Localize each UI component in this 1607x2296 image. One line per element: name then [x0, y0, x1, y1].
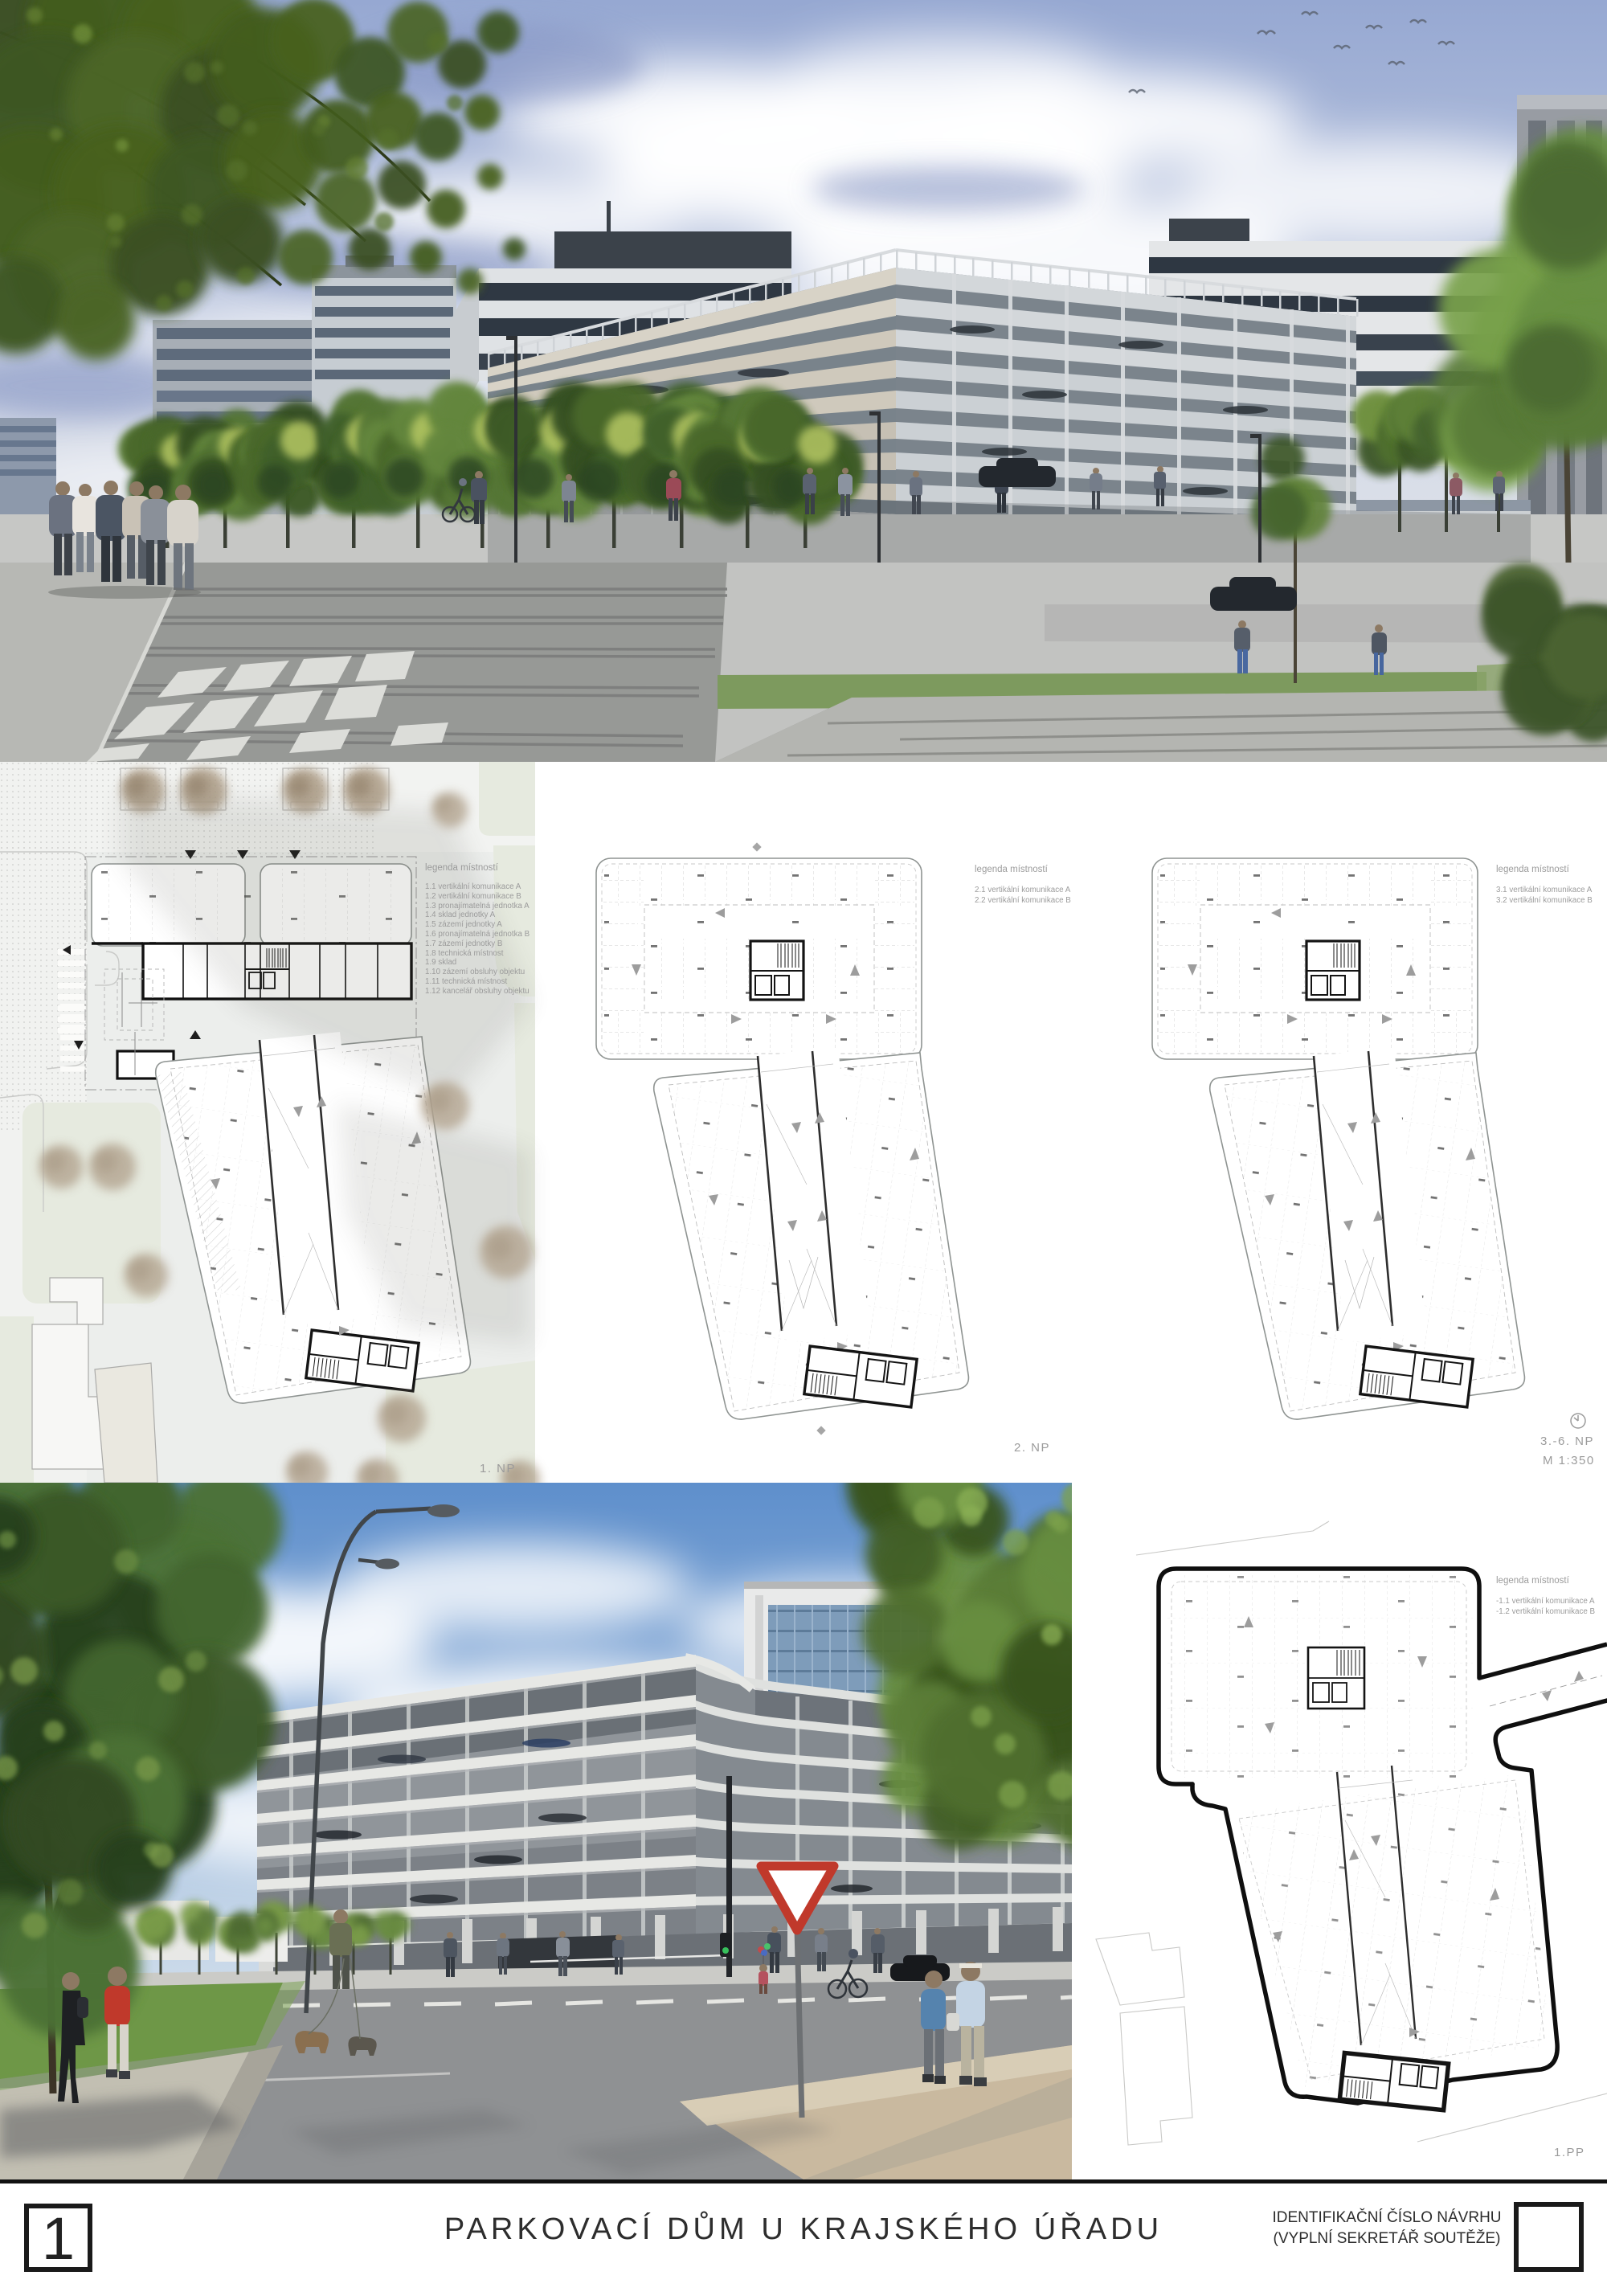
svg-text:2.1 vertikální komunikace A: 2.1 vertikální komunikace A: [975, 886, 1071, 894]
svg-text:1.10 zázemí obsluhy objektu: 1.10 zázemí obsluhy objektu: [425, 968, 525, 976]
svg-text:M 1:350: M 1:350: [1543, 1454, 1595, 1467]
svg-text:1.2 vertikální komunikace B: 1.2 vertikální komunikace B: [425, 892, 521, 901]
svg-text:1.9 sklad: 1.9 sklad: [425, 958, 456, 967]
svg-text:1.12 kancelář obsluhy objektu: 1.12 kancelář obsluhy objektu: [425, 987, 530, 996]
svg-text:1.4 sklad jednotky A: 1.4 sklad jednotky A: [425, 911, 496, 919]
svg-text:1.5 zázemí jednotky A: 1.5 zázemí jednotky A: [425, 920, 502, 929]
svg-text:-1.1 vertikální komunikace A: -1.1 vertikální komunikace A: [1496, 1597, 1595, 1606]
svg-text:legenda místností: legenda místností: [1496, 1576, 1570, 1586]
svg-text:legenda místností: legenda místností: [975, 865, 1049, 874]
svg-text:1.3 pronajímatelná jednotka: 1.3 pronajímatelná jednotka A: [425, 902, 530, 911]
svg-text:2.2 vertikální komunikace B: 2.2 vertikální komunikace B: [975, 896, 1071, 905]
svg-text:3.-6. NP: 3.-6. NP: [1540, 1434, 1594, 1448]
svg-text:-1.2 vertikální komunikace B: -1.2 vertikální komunikace B: [1496, 1607, 1596, 1616]
svg-text:1. NP: 1. NP: [480, 1462, 516, 1475]
svg-text:legenda místností: legenda místností: [1496, 865, 1570, 874]
svg-text:1.6 pronajímatelná jednotka: 1.6 pronajímatelná jednotka B: [425, 930, 530, 939]
svg-text:1.PP: 1.PP: [1554, 2146, 1585, 2159]
svg-text:1.8 technická místnost: 1.8 technická místnost: [425, 949, 504, 958]
svg-text:1.7 zázemí jednotky B: 1.7 zázemí jednotky B: [425, 939, 503, 948]
svg-text:3.2 vertikální komunikace B: 3.2 vertikální komunikace B: [1496, 896, 1593, 905]
svg-text:1.11 technická místnost: 1.11 technická místnost: [425, 977, 507, 986]
svg-text:2. NP: 2. NP: [1014, 1441, 1050, 1455]
svg-text:legenda místností: legenda místností: [425, 863, 499, 873]
svg-text:3.1 vertikální komunikace A: 3.1 vertikální komunikace A: [1496, 886, 1593, 894]
svg-text:1.1 vertikální komunikace A: 1.1 vertikální komunikace A: [425, 882, 521, 891]
